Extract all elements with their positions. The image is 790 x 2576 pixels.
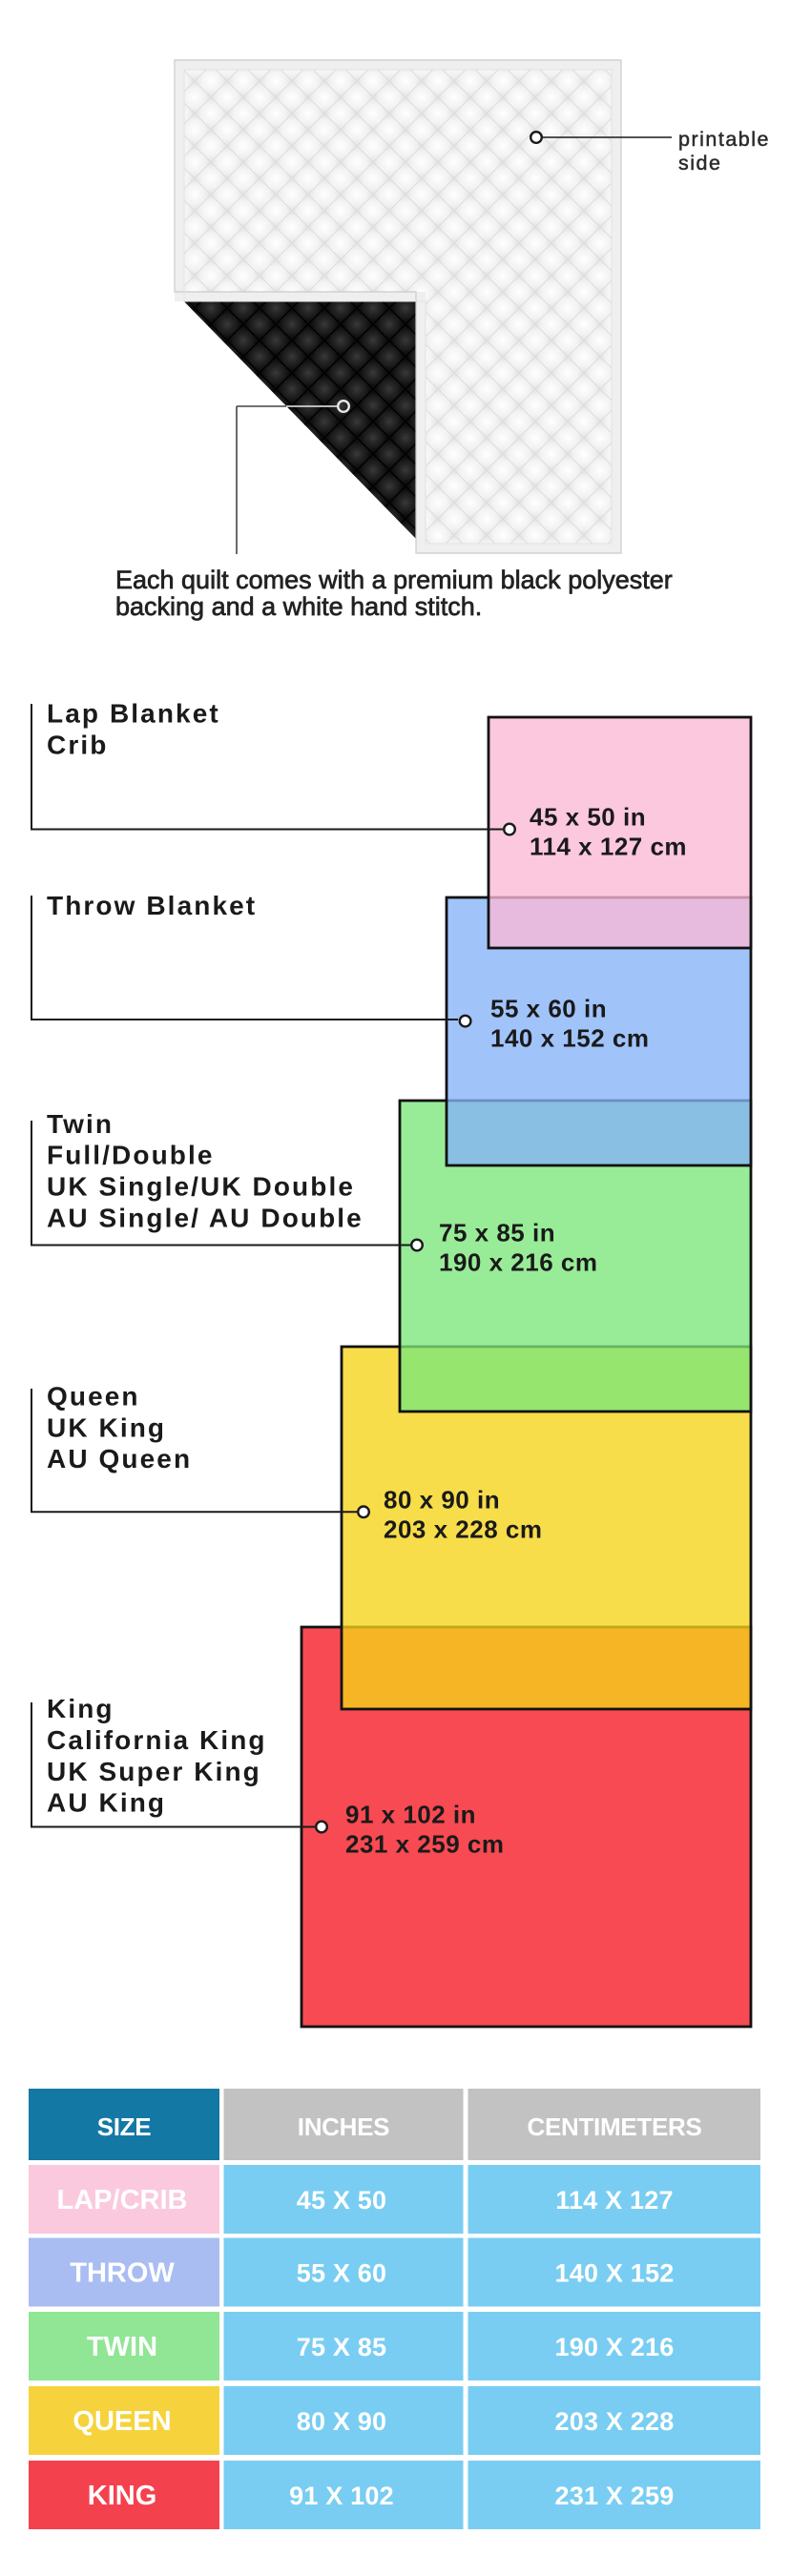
- svg-text:King: King: [47, 1694, 114, 1723]
- svg-text:Throw Blanket: Throw Blanket: [47, 891, 257, 920]
- svg-text:Queen: Queen: [47, 1382, 140, 1412]
- svg-text:Each quilt comes with a premiu: Each quilt comes with a premium black po…: [115, 566, 673, 594]
- svg-text:55 x 60 in: 55 x 60 in: [490, 995, 607, 1023]
- svg-text:AU King: AU King: [47, 1788, 166, 1818]
- svg-text:190 x 216 cm: 190 x 216 cm: [439, 1248, 597, 1277]
- svg-text:AU Single/ AU Double: AU Single/ AU Double: [47, 1203, 364, 1232]
- svg-text:231 x 259 cm: 231 x 259 cm: [345, 1830, 504, 1859]
- svg-text:KING: KING: [88, 2481, 157, 2511]
- svg-text:80 X 90: 80 X 90: [297, 2407, 386, 2436]
- svg-text:Lap Blanket: Lap Blanket: [47, 699, 220, 729]
- svg-text:75 X 85: 75 X 85: [297, 2333, 386, 2361]
- svg-text:QUEEN: QUEEN: [73, 2406, 171, 2437]
- svg-text:45 x 50 in: 45 x 50 in: [530, 803, 646, 832]
- svg-text:UK Super King: UK Super King: [47, 1757, 261, 1786]
- svg-text:UK Single/UK Double: UK Single/UK Double: [47, 1172, 355, 1202]
- svg-text:side: side: [678, 152, 721, 175]
- svg-text:Full/Double: Full/Double: [47, 1141, 215, 1170]
- svg-text:190 X 216: 190 X 216: [555, 2333, 675, 2361]
- svg-text:California King: California King: [47, 1725, 267, 1755]
- svg-text:114 x 127 cm: 114 x 127 cm: [530, 833, 687, 861]
- svg-text:AU Queen: AU Queen: [47, 1444, 192, 1473]
- svg-text:Crib: Crib: [47, 731, 108, 760]
- svg-text:INCHES: INCHES: [298, 2112, 389, 2141]
- svg-text:55 X 60: 55 X 60: [297, 2259, 386, 2288]
- svg-text:Twin: Twin: [47, 1109, 114, 1139]
- svg-text:printable: printable: [678, 128, 770, 151]
- svg-text:backing and a white hand stitc: backing and a white hand stitch.: [115, 592, 482, 621]
- svg-text:140 X 152: 140 X 152: [555, 2259, 675, 2288]
- svg-text:45 X 50: 45 X 50: [297, 2186, 386, 2215]
- svg-text:203 x 228 cm: 203 x 228 cm: [384, 1515, 542, 1543]
- svg-text:114 X 127: 114 X 127: [555, 2186, 673, 2215]
- svg-text:75 x 85 in: 75 x 85 in: [439, 1219, 555, 1247]
- svg-text:80 x 90 in: 80 x 90 in: [384, 1485, 500, 1514]
- svg-text:SIZE: SIZE: [97, 2112, 152, 2141]
- svg-text:THROW: THROW: [70, 2258, 175, 2289]
- svg-text:CENTIMETERS: CENTIMETERS: [527, 2112, 701, 2141]
- svg-text:TWIN: TWIN: [87, 2332, 157, 2362]
- svg-text:140 x 152 cm: 140 x 152 cm: [490, 1024, 649, 1053]
- svg-text:203 X 228: 203 X 228: [555, 2407, 675, 2436]
- svg-text:91 x 102 in: 91 x 102 in: [345, 1801, 476, 1829]
- svg-text:231 X 259: 231 X 259: [555, 2482, 675, 2510]
- svg-text:LAP/CRIB: LAP/CRIB: [57, 2185, 188, 2215]
- svg-text:91 X 102: 91 X 102: [289, 2482, 394, 2510]
- svg-text:UK King: UK King: [47, 1412, 166, 1442]
